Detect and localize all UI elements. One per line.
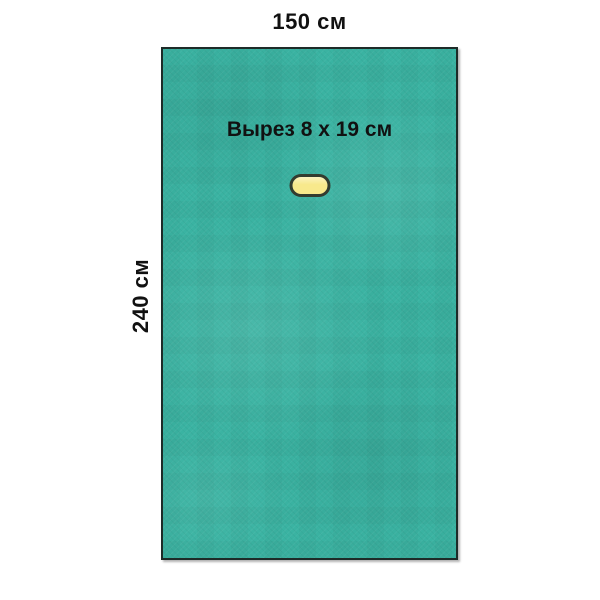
width-dimension-label: 150 см (161, 9, 458, 35)
height-dimension-label: 240 см (128, 259, 154, 333)
cutout-oval (289, 174, 330, 197)
drape-diagram: 150 см 240 см Вырез 8 x 19 см (0, 0, 600, 600)
cutout-dimension-label: Вырез 8 x 19 см (163, 118, 456, 142)
drape-rectangle: Вырез 8 x 19 см (161, 47, 458, 560)
